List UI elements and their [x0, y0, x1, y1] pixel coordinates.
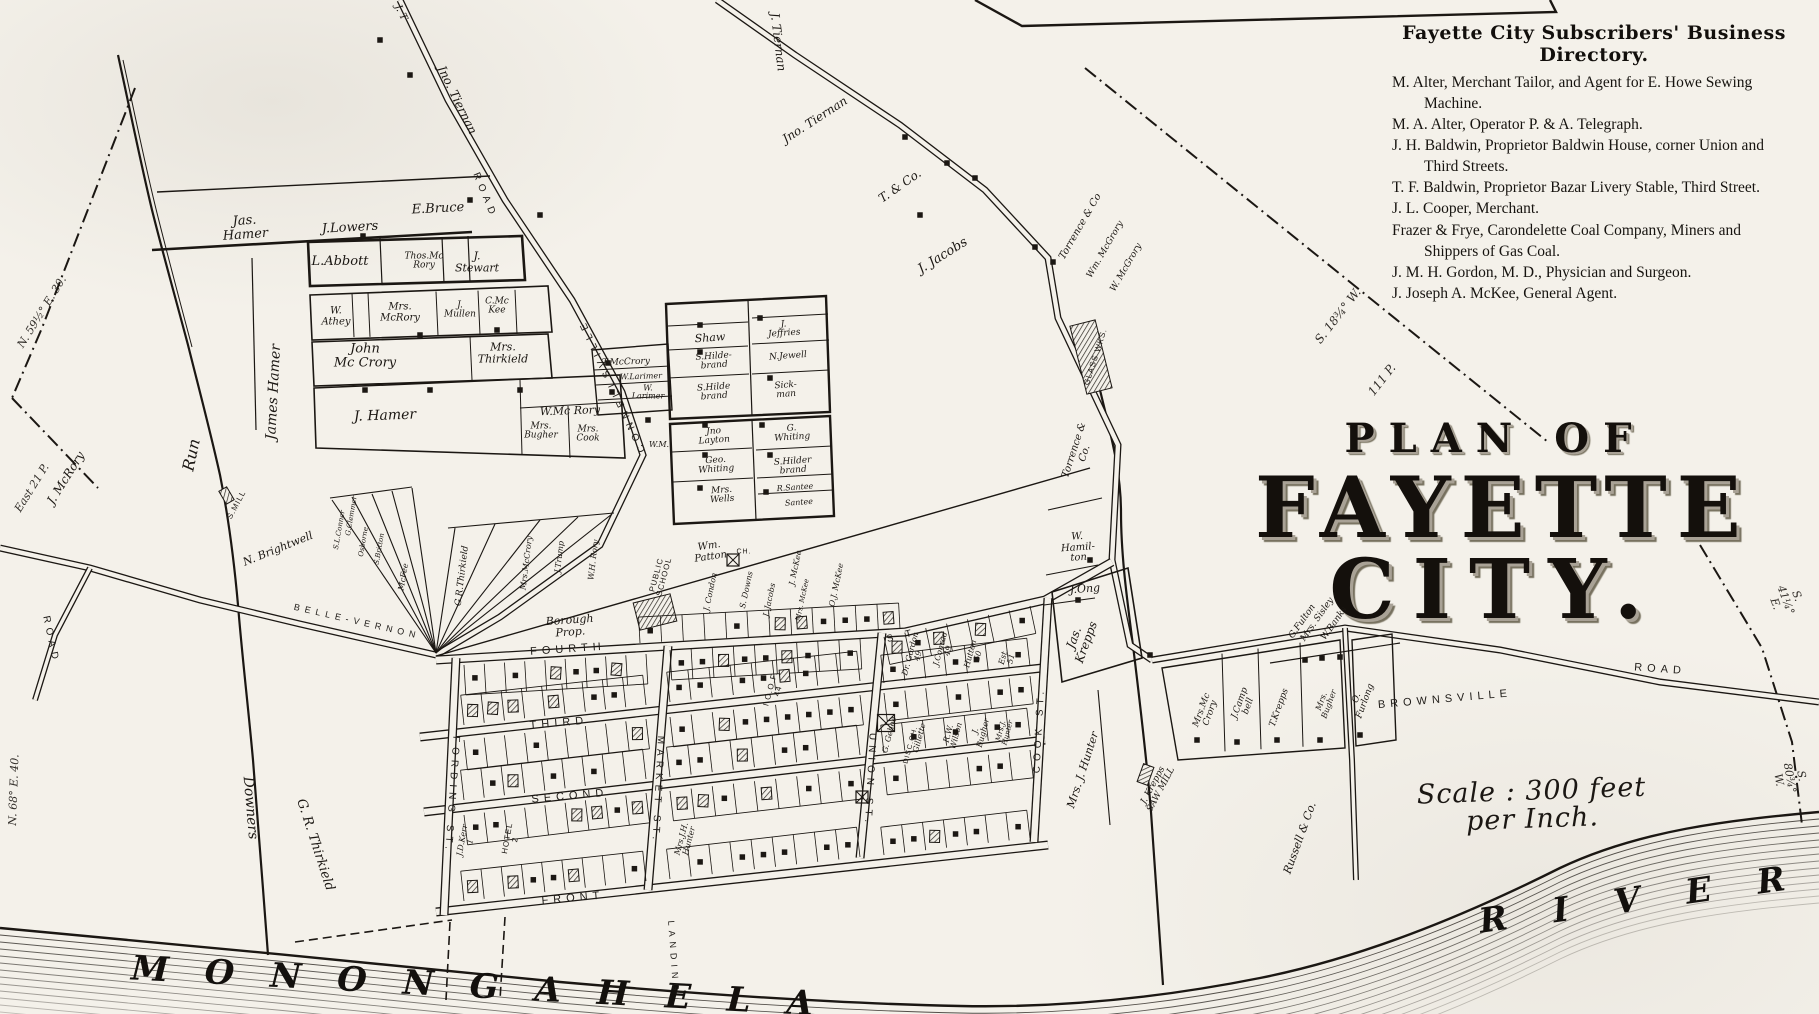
label-e-bruce: E.Bruce	[411, 201, 464, 217]
label-j-mullen: J. Mullen	[444, 302, 476, 321]
business-directory-entries: M. Alter, Merchant Tailor, and Agent for…	[1392, 72, 1796, 304]
label-wm-patton: Wm. Patton	[692, 539, 727, 564]
directory-entry-7: J. M. H. Gordon, M. D., Physician and Su…	[1392, 262, 1796, 283]
label-scale-note: Scale : 300 feet per Inch.	[1388, 773, 1677, 840]
label-mrs-thirkield: Mrs. Thirkield	[478, 341, 528, 364]
business-directory-title: Fayette City Subscribers' Business Direc…	[1392, 22, 1796, 66]
label-w-m: W.M.	[649, 441, 669, 449]
label-sickman: Sick- man	[774, 381, 798, 401]
directory-entry-4: T. F. Baldwin, Proprietor Bazar Livery S…	[1392, 177, 1796, 198]
label-w-larimer-2: W. Larimer	[632, 385, 665, 402]
map-plate: Fayette City Subscribers' Business Direc…	[0, 0, 1819, 1014]
directory-entry-6: Frazer & Frye, Carondelette Coal Company…	[1392, 220, 1796, 262]
label-borough-prop: Borough Prop.	[545, 613, 594, 639]
label-mrs-cook: Mrs. Cook	[576, 426, 599, 445]
business-directory: Fayette City Subscribers' Business Direc…	[1392, 22, 1796, 304]
label-j-ong: J.Ong	[1070, 582, 1101, 596]
label-w-athey: W. Athey	[321, 307, 350, 328]
label-s-hilderbrand-3: S.Hilder brand	[774, 456, 813, 477]
directory-entry-1: M. Alter, Merchant Tailor, and Agent for…	[1392, 72, 1796, 114]
label-j-jeffries: J. Jeffries	[767, 319, 801, 340]
label-j-stewart: J. Stewart	[455, 250, 499, 273]
directory-entry-3: J. H. Baldwin, Proprietor Baldwin House,…	[1392, 135, 1796, 177]
label-l-abbott: L.Abbott	[311, 255, 368, 269]
label-w-larimer-1: W.Larimer	[620, 372, 662, 382]
label-mrs-mcrory: Mrs. McRory	[380, 303, 420, 324]
plan-title-line2: FAYETTE	[1255, 468, 1735, 548]
label-geo-whiting: Geo. Whiting	[697, 455, 734, 476]
label-jno-layton: Jno Layton	[698, 426, 731, 447]
label-g-whiting: G. Whiting	[773, 423, 810, 444]
label-s-80-bearing: S. 80¾° W.	[1770, 760, 1809, 796]
label-c-mckee: C.Mc Kee	[485, 298, 509, 317]
plan-title-line3: CITY.	[1255, 552, 1735, 630]
label-thos-mcrory: Thos.Mc Rory	[405, 253, 444, 272]
directory-entry-5: J. L. Cooper, Merchant.	[1392, 198, 1796, 219]
label-mrs-bugher: Mrs. Bugher	[524, 423, 558, 442]
label-shaw: Shaw	[694, 331, 725, 345]
label-w-mcrory: W.Mc Rory	[540, 404, 601, 418]
label-s-hildebrand-1: S.Hilde- brand	[695, 351, 733, 372]
directory-entry-8: J. Joseph A. McKee, General Agent.	[1392, 283, 1796, 304]
label-j-hamer: J. Hamer	[354, 408, 417, 425]
label-ch-label: CH.	[736, 548, 751, 555]
label-n-68-bearing: N. 68° E. 40.	[7, 754, 21, 826]
label-w-hamilton: W. Hamil- ton	[1060, 531, 1096, 565]
label-j-lowers: J.Lowers	[321, 220, 378, 237]
plan-title-line1: PLAN OF	[1255, 415, 1735, 462]
label-mrs-wells: Mrs. Wells	[709, 486, 734, 507]
label-s-hildebrand-2: S.Hilde brand	[697, 382, 732, 403]
directory-entry-2: M. A. Alter, Operator P. & A. Telegraph.	[1392, 114, 1796, 135]
label-john-mccrory: John Mc Crory	[334, 342, 396, 369]
label-jas-hamer: Jas. Hamer	[221, 213, 268, 243]
